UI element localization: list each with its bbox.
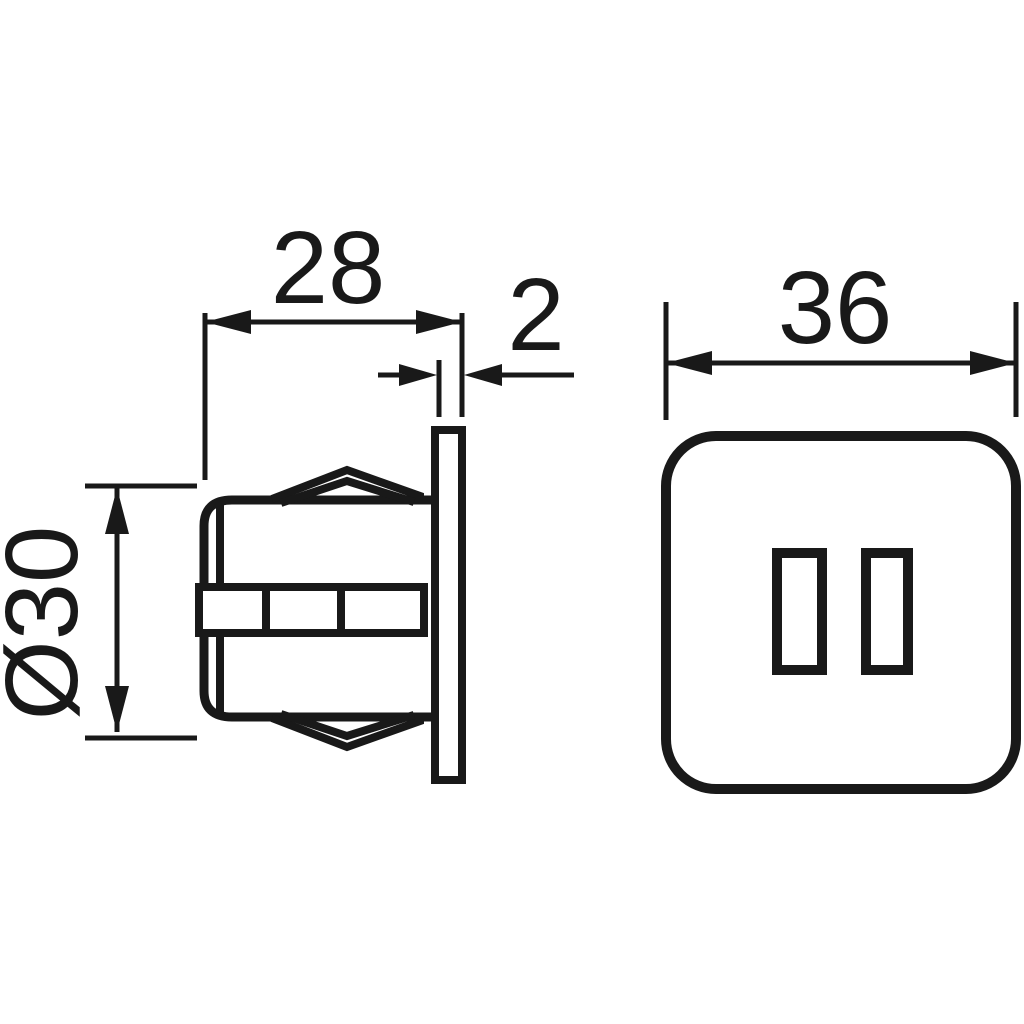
flange-plate — [435, 430, 462, 780]
drawing-background — [0, 0, 1024, 1024]
technical-drawing-page: 28 2 36 Ø30 — [0, 0, 1024, 1024]
dimension-label-flange-thickness: 2 — [507, 257, 564, 372]
middle-band — [199, 587, 424, 633]
dimension-label-diameter: Ø30 — [0, 526, 99, 721]
dimension-label-depth: 28 — [271, 210, 386, 325]
technical-drawing-canvas: 28 2 36 Ø30 — [0, 0, 1024, 1024]
dimension-label-faceplate-size: 36 — [778, 250, 893, 365]
